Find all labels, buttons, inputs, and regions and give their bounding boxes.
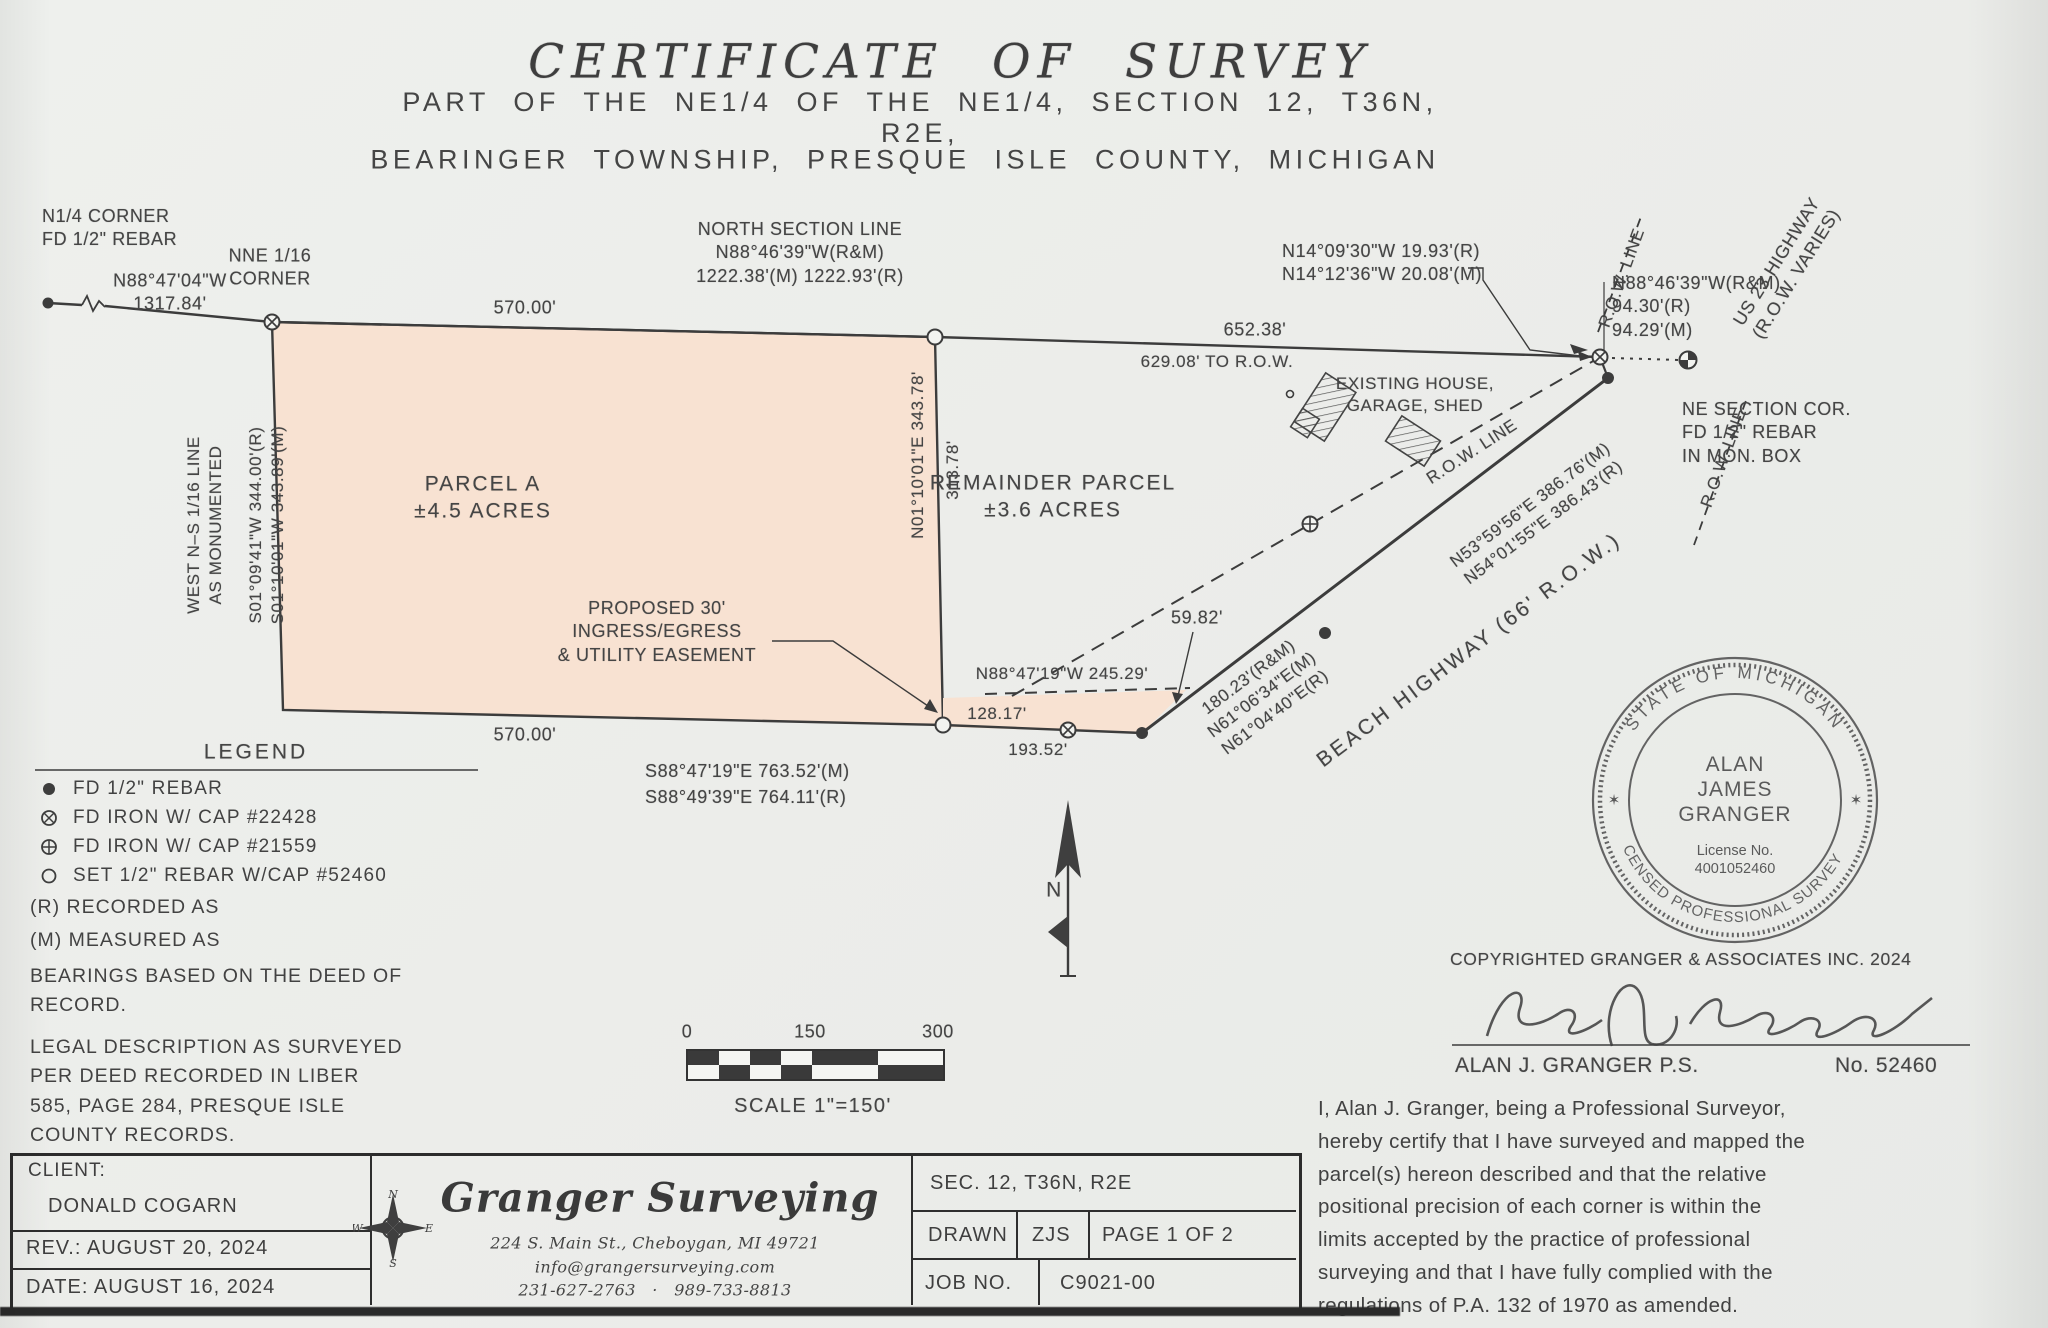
bottom-570-label: 570.00' [494, 723, 557, 746]
surveyor-signature [1487, 985, 1932, 1046]
north-section-line-label: NORTH SECTION LINE N88°46'39"W(R&M) 1222… [696, 218, 904, 288]
dim-652-label: 652.38' [1224, 318, 1287, 341]
top-570-label: 570.00' [494, 296, 557, 319]
certification-text: I, Alan J. Granger, being a Professional… [1318, 1093, 2018, 1323]
drawn-by: ZJS [1032, 1224, 1071, 1247]
firm-email: info@grangersurveying.com [535, 1258, 775, 1277]
dim-629-label: 629.08' TO R.O.W. [1141, 351, 1294, 373]
legend-item-text: SET 1/2" REBAR W/CAP #52460 [73, 865, 387, 887]
surveyor-number: No. 52460 [1835, 1052, 1937, 1079]
firm-name: Granger Surveying [441, 1175, 880, 1222]
s88-bearings-label: S88°47'19"E 763.52'(M) S88°49'39"E 764.1… [645, 758, 850, 810]
remainder-parcel-label: REMAINDER PARCEL ±3.6 ACRES [930, 470, 1176, 525]
survey-sheet: CERTIFICATE OF SURVEY PART OF THE NE1/4 … [0, 0, 2048, 1328]
dim-128-label: 128.17' [967, 703, 1026, 725]
stamp-star-left: ✶ [1608, 791, 1621, 809]
legend-heading: LEGEND [204, 738, 308, 765]
compass-n: N [387, 1188, 398, 1201]
drawn-label: DRAWN [928, 1224, 1008, 1247]
east-343-label: N01°10'01"E 343.78' [907, 371, 929, 539]
existing-house-label: EXISTING HOUSE, GARAGE, SHED [1336, 373, 1494, 417]
compass-s: S [389, 1257, 397, 1268]
stamp-license: License No. 4001052460 [1695, 842, 1776, 878]
legend-item: FD IRON W/ CAP #21559 [40, 835, 317, 859]
compass-rose-icon: N S E W [353, 1188, 433, 1268]
page-subtitle-1: PART OF THE NE1/4 OF THE NE1/4, SECTION … [356, 87, 1484, 149]
job-label: JOB NO. [925, 1272, 1012, 1295]
stamp-arc-top: STATE OF MICHIGAN [1622, 663, 1849, 734]
client-name: DONALD COGARN [48, 1195, 238, 1218]
firm-phones: 231-627-2763 · 989-733-8813 [518, 1281, 791, 1300]
copyright-line: COPYRIGHTED GRANGER & ASSOCIATES INC. 20… [1450, 948, 1912, 971]
job-number: C9021-00 [1060, 1272, 1156, 1295]
scale-bar [686, 1049, 945, 1081]
n14-bearings-label: N14°09'30"W 19.93'(R) N14°12'36"W 20.08'… [1282, 240, 1482, 287]
filled-circle-icon [40, 780, 58, 798]
client-label: CLIENT: [28, 1160, 106, 1182]
recorded-as-note: (R) RECORDED AS [30, 893, 219, 922]
legal-description-note: LEGAL DESCRIPTION AS SURVEYED PER DEED R… [30, 1033, 403, 1150]
scale-zero-label: 0 [682, 1020, 693, 1043]
stamp-star-right: ✶ [1850, 791, 1863, 809]
legend-item-text: FD IRON W/ CAP #22428 [73, 807, 317, 829]
compass-w: W [353, 1222, 364, 1235]
dim-5982-label: 59.82' [1171, 606, 1223, 629]
west-16-line-label: WEST N–S 1/16 LINE AS MONUMENTED [183, 436, 227, 614]
legend-item: FD 1/2" REBAR [40, 777, 223, 801]
ne-section-corner-label: NE SECTION COR. FD 1/2" REBAR IN MON. BO… [1682, 398, 1851, 468]
revision-date: REV.: AUGUST 20, 2024 [26, 1237, 268, 1260]
open-circle-icon [40, 867, 58, 885]
s01-bearings-label: S01°09'41"W 344.00'(R) S01°10'01"W 343.8… [245, 426, 289, 625]
scale-mid-label: 150 [794, 1020, 826, 1043]
nne-corner-label: NNE 1/16 CORNER [229, 245, 312, 292]
legend-item: SET 1/2" REBAR W/CAP #52460 [40, 864, 387, 888]
page-title: CERTIFICATE OF SURVEY [528, 35, 1372, 90]
bearings-note: BEARINGS BASED ON THE DEED OF RECORD. [30, 962, 402, 1021]
east-313-label: 313.78' [942, 440, 964, 499]
north-arrow-letter: N [1046, 876, 1062, 903]
page-number: PAGE 1 OF 2 [1102, 1224, 1234, 1247]
circle-x-icon [40, 809, 58, 827]
dim-193-label: 193.52' [1008, 739, 1067, 761]
section-ref: SEC. 12, T36N, R2E [930, 1172, 1132, 1195]
legend-item-text: FD 1/2" REBAR [73, 778, 223, 800]
survey-date: DATE: AUGUST 16, 2024 [26, 1276, 275, 1299]
circle-plus-icon [40, 838, 58, 856]
scale-caption: SCALE 1"=150' [734, 1093, 892, 1119]
scale-max-label: 300 [922, 1020, 954, 1043]
easement-label: PROPOSED 30' INGRESS/EGRESS & UTILITY EA… [558, 597, 757, 667]
firm-address: 224 S. Main St., Cheboygan, MI 49721 [490, 1234, 820, 1253]
n-quarter-corner-label: N1/4 CORNER FD 1/2" REBAR [42, 205, 177, 252]
bearing-1317-label: N88°47'04"W 1317.84' [113, 270, 227, 317]
scan-edge-artifact [0, 1307, 1400, 1316]
measured-as-note: (M) MEASURED AS [30, 926, 221, 955]
n88-245-label: N88°47'19"W 245.29' [976, 663, 1149, 685]
surveyor-printed-name: ALAN J. GRANGER P.S. [1455, 1052, 1699, 1079]
compass-e: E [424, 1222, 433, 1235]
legend-item-text: FD IRON W/ CAP #21559 [73, 836, 317, 858]
svg-text:STATE OF MICHIGAN: STATE OF MICHIGAN [1622, 663, 1849, 734]
stamp-name: ALAN JAMES GRANGER [1678, 752, 1791, 828]
legend-item: FD IRON W/ CAP #22428 [40, 806, 317, 830]
page-subtitle-2: BEARINGER TOWNSHIP, PRESQUE ISLE COUNTY,… [370, 145, 1439, 176]
parcel-a-label: PARCEL A ±4.5 ACRES [414, 471, 552, 526]
